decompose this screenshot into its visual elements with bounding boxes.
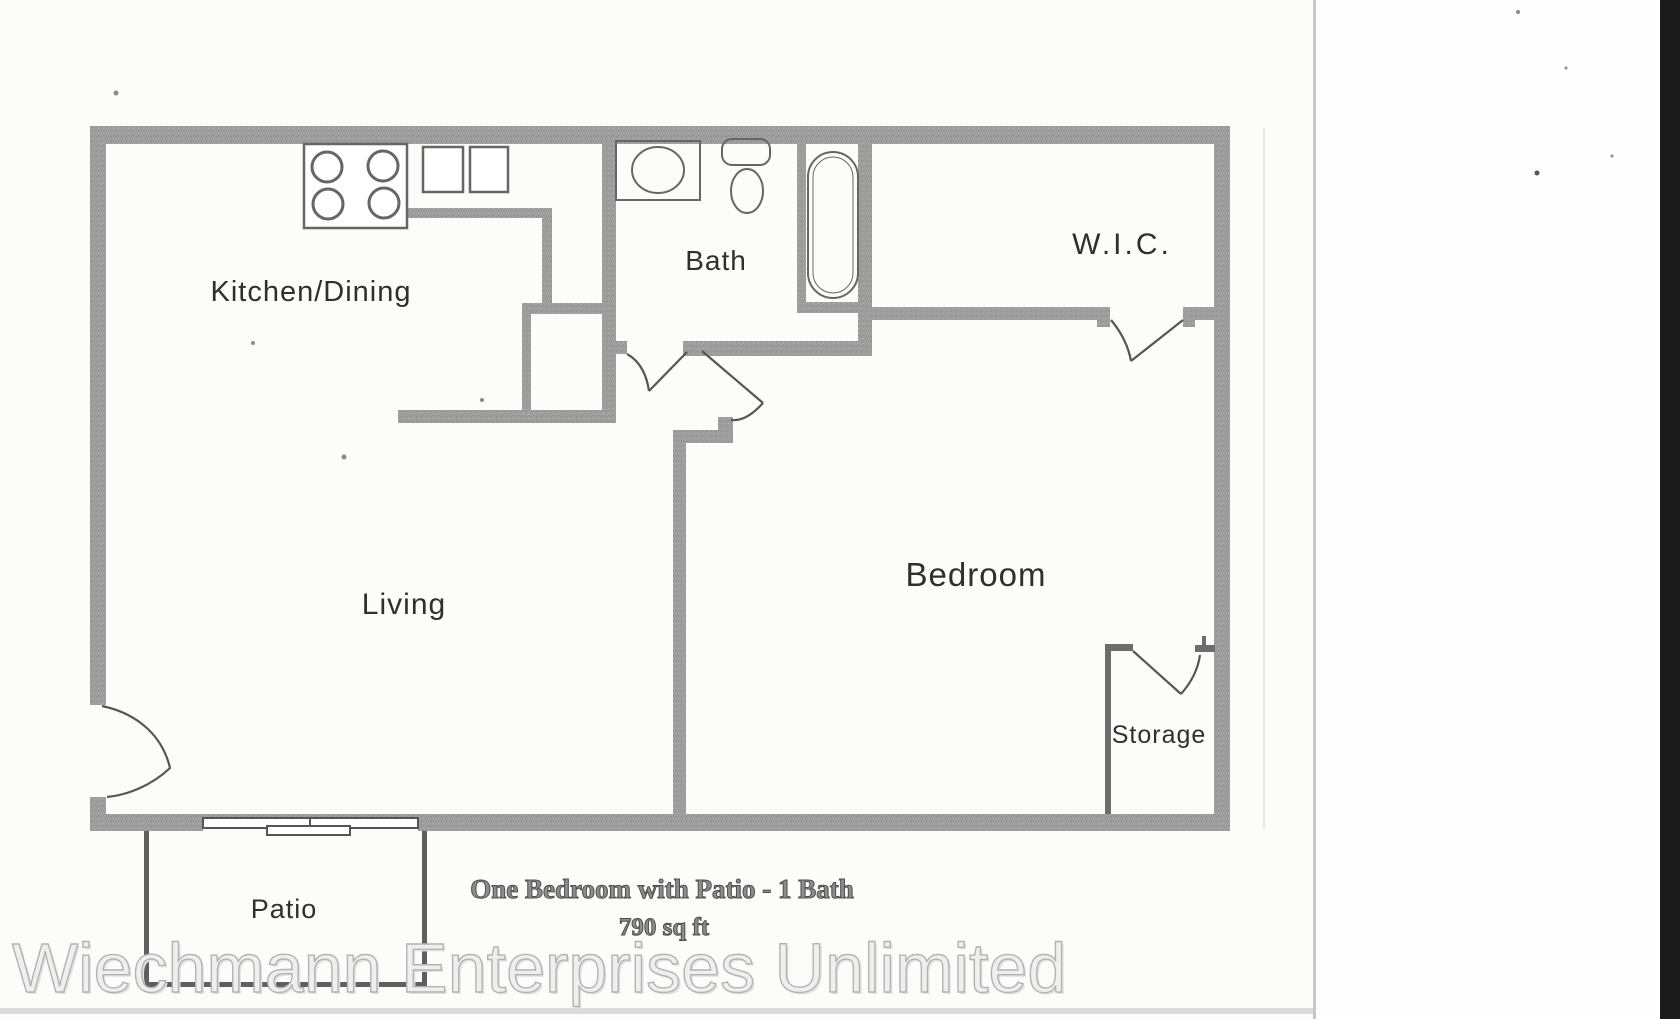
scan-fold-line [1263, 128, 1265, 828]
room-label-bath: Bath [685, 245, 747, 277]
room-label-kitchen-dining: Kitchen/Dining [211, 276, 412, 309]
sliding-door-panel [267, 826, 350, 835]
watermark-text: Wiechmann Enterprises Unlimited [12, 928, 1066, 1008]
room-label-bedroom: Bedroom [906, 556, 1047, 594]
wall-pantry-left [522, 314, 531, 411]
wall-counter-return [542, 208, 552, 308]
bedroom-door-arc [731, 403, 763, 420]
room-label-wic: W.I.C. [1072, 228, 1172, 262]
wall-pantry-top [522, 303, 604, 314]
hall-door-arc [627, 354, 649, 391]
stove-burner-icon [368, 151, 398, 181]
bathroom-sink-counter-icon [616, 141, 700, 200]
scan-speck [1565, 67, 1568, 70]
kitchen-sink-basin-icon [470, 147, 508, 192]
floorplan-title: One Bedroom with Patio - 1 Bath [470, 874, 854, 905]
room-label-storage: Storage [1112, 721, 1207, 750]
wall-kitchen-bottom [398, 410, 616, 423]
wic-door-arc [1111, 320, 1131, 361]
scan-speck [342, 455, 347, 460]
storage-door-leaf [1133, 651, 1181, 694]
scan-speck [1535, 171, 1540, 176]
room-label-patio: Patio [251, 894, 318, 925]
hall-door-leaf [649, 352, 687, 391]
wall-right [1214, 126, 1230, 831]
toilet-bowl-icon [731, 169, 763, 213]
door-stop-storage-tick [1202, 636, 1206, 652]
sliding-door-icon [203, 814, 418, 835]
storage-door-arc [1181, 655, 1200, 694]
wic-door-leaf [1131, 320, 1183, 361]
wall-left-upper [90, 126, 106, 705]
floorplan-drawing [0, 0, 1680, 1019]
wall-bedroom-top-jog [673, 430, 733, 443]
door-stop-bedroom [718, 417, 733, 430]
door-stop-wic-right [1183, 307, 1195, 327]
door-stop-wic-left [1097, 307, 1110, 327]
wall-kitchen-counter [405, 208, 551, 218]
stove-burner-icon [369, 188, 399, 218]
bathtub-icon [808, 152, 858, 298]
scan-speck [480, 398, 484, 402]
wall-bath-bottom [683, 341, 872, 356]
bedroom-door-leaf [702, 351, 763, 403]
wall-bath-right [858, 144, 872, 354]
stove-burner-icon [313, 189, 343, 219]
scan-speck [1611, 155, 1614, 158]
scanned-floorplan-page: Kitchen/Dining Bath W.I.C. Living Bedroo… [0, 0, 1680, 1019]
door-stop-storage-left [1105, 644, 1133, 651]
scan-speck [1516, 10, 1520, 14]
stove-burner-icon [312, 152, 342, 182]
bathroom-sink-icon [632, 147, 684, 193]
scan-artifacts [0, 10, 1614, 1014]
exterior-walls [90, 126, 1230, 831]
scan-speck [251, 341, 255, 345]
wall-tub-left [797, 144, 806, 313]
wall-tub-bottom [797, 302, 872, 313]
scan-speck [114, 91, 119, 96]
kitchen-sink-basin-icon [423, 147, 463, 192]
wall-kitchen-bath-divider [602, 144, 616, 414]
entry-door-arc [102, 706, 170, 797]
wall-wic-bottom-left [872, 307, 1097, 320]
scan-bottom-shadow [0, 1008, 1313, 1014]
wall-storage-left [1105, 647, 1111, 814]
room-label-living: Living [362, 588, 446, 622]
door-stop-living [616, 341, 627, 354]
bathtub-inner-icon [813, 157, 853, 293]
wall-bedroom-left [673, 430, 686, 828]
